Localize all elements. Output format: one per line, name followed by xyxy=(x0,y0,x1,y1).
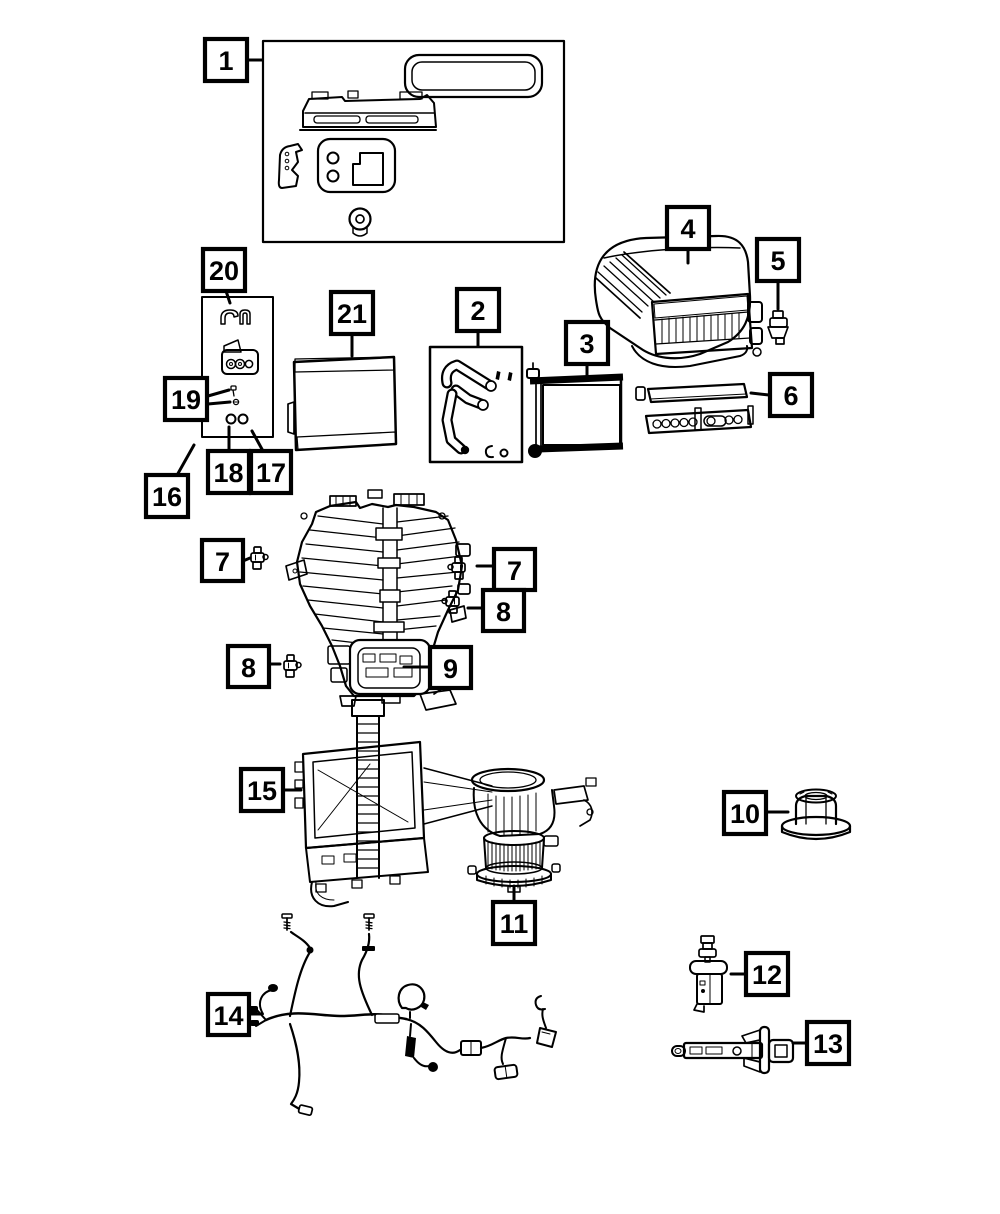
svg-text:19: 19 xyxy=(171,385,201,415)
parts-diagram-page: 1 20 xyxy=(0,0,1000,1214)
inlet-grille xyxy=(652,294,752,354)
svg-text:10: 10 xyxy=(730,799,760,829)
svg-text:14: 14 xyxy=(213,1001,243,1031)
part-5-sensor-drawing xyxy=(768,311,788,344)
callout-10[interactable]: 10 xyxy=(724,792,788,834)
diagram-canvas: 1 20 xyxy=(0,0,1000,1214)
part-3-heater-core-drawing xyxy=(527,363,623,458)
svg-text:2: 2 xyxy=(470,296,485,326)
svg-text:8: 8 xyxy=(241,653,256,683)
callout-5[interactable]: 5 xyxy=(757,239,799,309)
clip-mark xyxy=(496,371,501,380)
svg-text:20: 20 xyxy=(209,256,239,286)
actuator-8-left xyxy=(284,655,301,677)
part-2-hose-kit-drawing xyxy=(430,347,522,462)
scroll-section xyxy=(424,768,596,846)
svg-text:18: 18 xyxy=(213,458,243,488)
callout-13[interactable]: 13 xyxy=(793,1022,849,1064)
part-1-seal-kit-drawing xyxy=(263,41,564,242)
callout-7-right[interactable]: 7 xyxy=(477,549,535,590)
callout-14[interactable]: 14 xyxy=(208,994,262,1035)
left-ribs xyxy=(300,516,383,646)
harness-connector-right xyxy=(536,996,556,1047)
left-connector-cluster xyxy=(249,984,278,1026)
ladder-duct xyxy=(352,700,384,878)
bracket-with-grommets xyxy=(222,340,258,374)
svg-text:21: 21 xyxy=(337,299,367,329)
callout-6[interactable]: 6 xyxy=(751,374,812,416)
filter-grid xyxy=(646,406,753,433)
part-11-blower-motor-drawing xyxy=(468,831,560,892)
callout-20[interactable]: 20 xyxy=(203,249,245,303)
callout-1[interactable]: 1 xyxy=(205,39,262,81)
callout-4[interactable]: 4 xyxy=(667,207,709,263)
svg-text:13: 13 xyxy=(813,1029,843,1059)
callout-7-left[interactable]: 7 xyxy=(202,540,250,581)
actuator-7-left xyxy=(251,547,268,569)
part-10-flange-nut-drawing xyxy=(782,790,850,840)
fittings xyxy=(486,446,508,457)
callout-2[interactable]: 2 xyxy=(457,289,499,346)
harness-bolt-left xyxy=(282,914,292,930)
part-6-filter-drawing xyxy=(636,384,753,433)
callout-15[interactable]: 15 xyxy=(241,769,301,811)
svg-text:17: 17 xyxy=(256,458,286,488)
callout-17[interactable]: 17 xyxy=(251,431,291,493)
svg-text:1: 1 xyxy=(218,46,233,76)
svg-text:16: 16 xyxy=(152,482,182,512)
callout-19[interactable]: 19 xyxy=(165,378,230,420)
part-12-sensor-drawing xyxy=(690,936,727,1012)
callout-3[interactable]: 3 xyxy=(566,322,608,375)
part-21-evaporator-drawing xyxy=(288,357,396,450)
svg-text:5: 5 xyxy=(770,246,785,276)
hardware-kit-box-drawing xyxy=(202,297,273,437)
svg-text:3: 3 xyxy=(579,329,594,359)
center-connector-cluster xyxy=(399,984,429,1018)
plate-gasket xyxy=(318,139,395,192)
svg-text:9: 9 xyxy=(443,654,458,684)
callout-11[interactable]: 11 xyxy=(493,886,535,944)
svg-text:12: 12 xyxy=(752,960,782,990)
svg-text:15: 15 xyxy=(247,776,277,806)
svg-text:4: 4 xyxy=(680,214,695,244)
retainer-clip xyxy=(221,310,250,324)
clip-mark xyxy=(508,372,513,381)
side-bracket-gasket xyxy=(279,144,302,188)
harness-bolt-right xyxy=(364,914,374,930)
svg-text:8: 8 xyxy=(496,597,511,627)
grommet-pair xyxy=(227,415,248,424)
svg-text:6: 6 xyxy=(783,381,798,411)
ribbed-chute xyxy=(596,252,670,318)
screws xyxy=(231,386,239,405)
callout-12[interactable]: 12 xyxy=(731,953,788,995)
callout-8-right[interactable]: 8 xyxy=(468,590,524,631)
hose-lower xyxy=(447,390,488,454)
grommet xyxy=(350,209,371,237)
callout-8-left[interactable]: 8 xyxy=(228,646,280,687)
svg-text:11: 11 xyxy=(500,909,529,939)
svg-text:7: 7 xyxy=(507,556,522,586)
callout-21[interactable]: 21 xyxy=(331,292,373,356)
svg-text:7: 7 xyxy=(215,547,230,577)
part-13-probe-drawing xyxy=(672,1027,793,1073)
callout-16[interactable]: 16 xyxy=(146,445,194,517)
